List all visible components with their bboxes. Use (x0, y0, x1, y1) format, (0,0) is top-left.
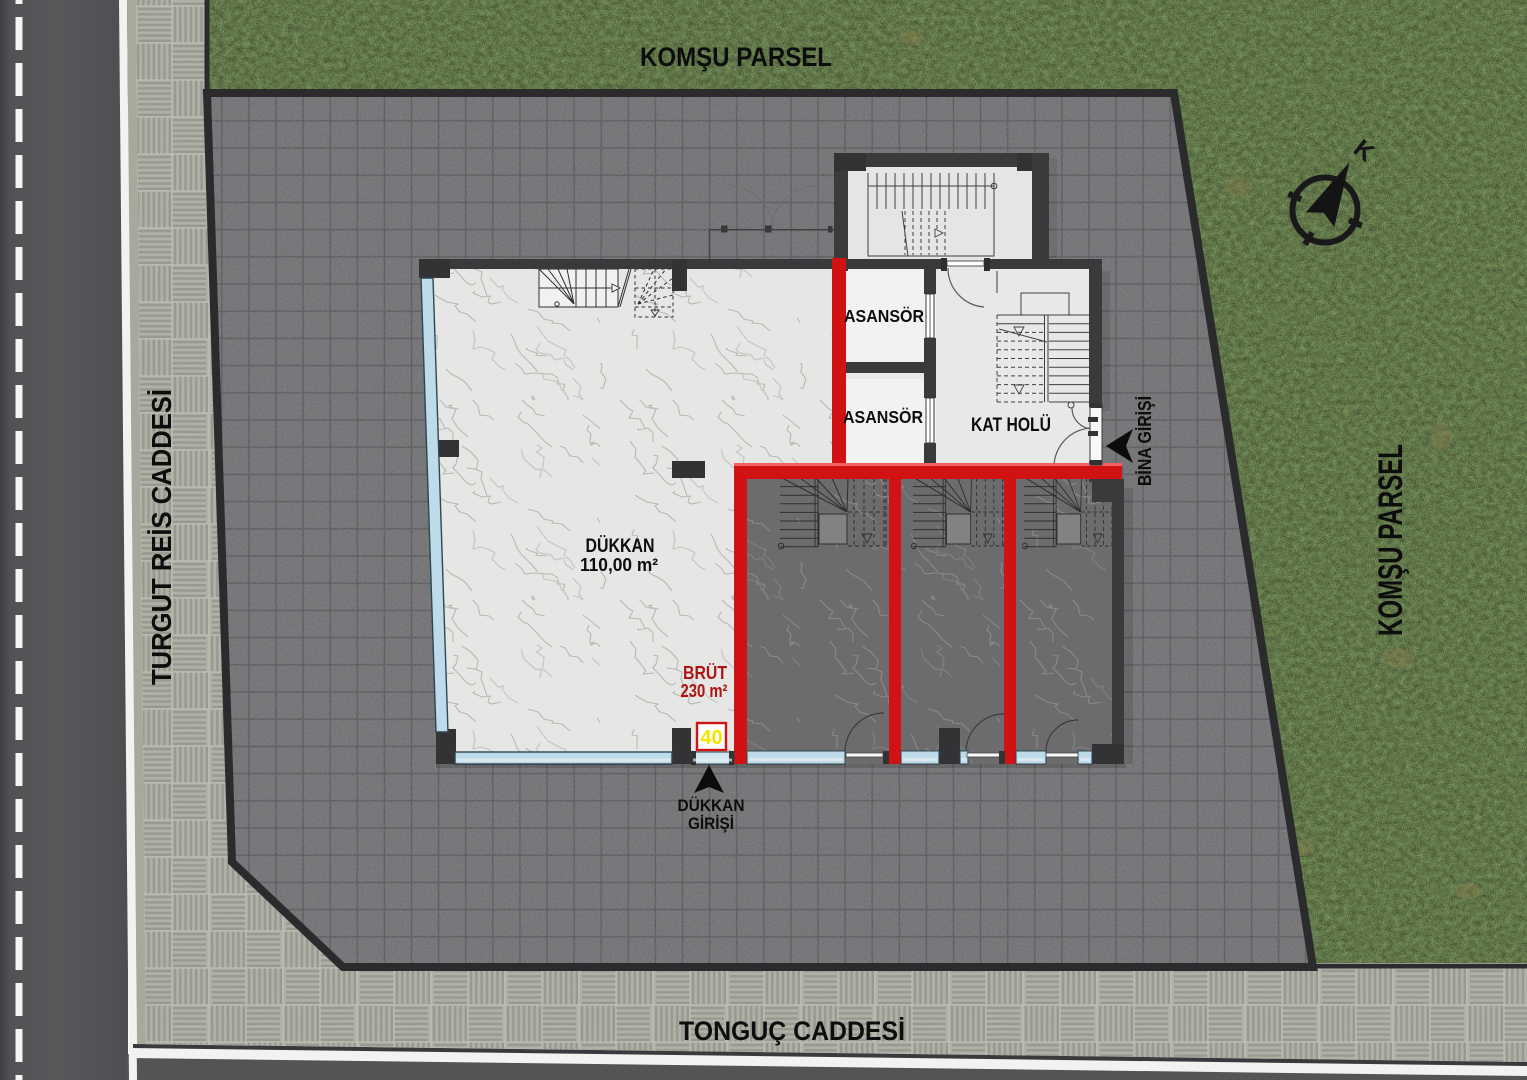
svg-text:TURGUT REİS CADDESİ: TURGUT REİS CADDESİ (146, 389, 177, 685)
svg-text:DÜKKAN: DÜKKAN (678, 796, 745, 815)
svg-text:TONGUÇ CADDESİ: TONGUÇ CADDESİ (679, 1016, 905, 1046)
svg-text:KOMŞU PARSEL: KOMŞU PARSEL (640, 42, 832, 72)
svg-text:ASANSÖR: ASANSÖR (843, 407, 923, 427)
svg-text:KAT HOLÜ: KAT HOLÜ (971, 413, 1051, 436)
svg-text:110,00 m²: 110,00 m² (580, 555, 658, 575)
svg-text:40: 40 (700, 727, 722, 749)
svg-text:KOMŞU PARSEL: KOMŞU PARSEL (1372, 444, 1410, 636)
svg-text:BRÜT: BRÜT (683, 663, 727, 683)
svg-text:ASANSÖR: ASANSÖR (844, 306, 924, 326)
svg-text:BİNA GİRİŞİ: BİNA GİRİŞİ (1134, 396, 1155, 486)
svg-text:GİRİŞİ: GİRİŞİ (688, 814, 734, 833)
svg-text:230 m²: 230 m² (681, 681, 728, 701)
svg-text:DÜKKAN: DÜKKAN (586, 536, 655, 557)
